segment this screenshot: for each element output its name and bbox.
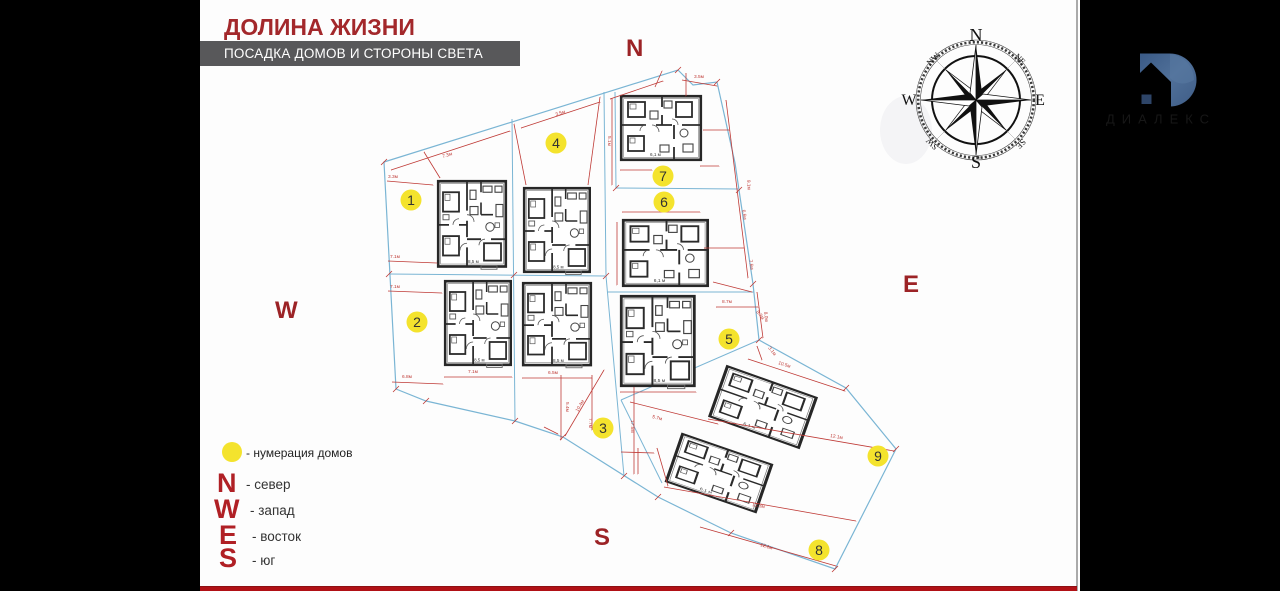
svg-text:7: 7 xyxy=(659,168,667,184)
svg-text:8.7м: 8.7м xyxy=(722,299,732,305)
svg-text:N: N xyxy=(970,25,983,45)
svg-text:8: 8 xyxy=(815,542,823,558)
svg-text:3: 3 xyxy=(599,420,607,436)
svg-text:6.6м: 6.6м xyxy=(740,209,748,220)
svg-text:SE: SE xyxy=(1014,137,1028,151)
svg-text:3.1м: 3.1м xyxy=(766,346,777,358)
svg-text:S: S xyxy=(971,152,981,172)
svg-text:1: 1 xyxy=(407,192,415,208)
svg-text:7.6м: 7.6м xyxy=(747,259,755,270)
svg-text:2: 2 xyxy=(413,314,421,330)
svg-text:9.1м: 9.1м xyxy=(745,180,752,190)
svg-text:6.8м: 6.8м xyxy=(402,374,412,380)
svg-text:7.1м: 7.1м xyxy=(468,369,478,375)
svg-text:7.1м: 7.1м xyxy=(390,284,400,290)
svg-text:7.1м: 7.1м xyxy=(390,254,400,260)
svg-text:5: 5 xyxy=(725,331,733,347)
svg-text:5.4м: 5.4м xyxy=(564,402,570,412)
svg-text:ДИАЛЕКС: ДИАЛЕКС xyxy=(1106,112,1216,127)
svg-text:8.0м: 8.0м xyxy=(762,312,769,323)
svg-text:6.5м: 6.5м xyxy=(548,370,558,376)
svg-text:7.7м: 7.7м xyxy=(587,418,593,428)
svg-text:9: 9 xyxy=(874,448,882,464)
svg-text:3.3м: 3.3м xyxy=(388,174,398,180)
svg-text:10.4м: 10.4м xyxy=(575,399,587,413)
svg-text:E: E xyxy=(1035,92,1045,109)
svg-text:5.7м: 5.7м xyxy=(652,414,663,422)
svg-text:5.1м: 5.1м xyxy=(606,136,612,146)
svg-text:4: 4 xyxy=(552,135,560,151)
svg-text:6: 6 xyxy=(660,194,668,210)
svg-text:12.1м: 12.1м xyxy=(759,542,773,551)
svg-text:3.5м: 3.5м xyxy=(555,109,566,118)
svg-text:NE: NE xyxy=(1013,51,1028,66)
svg-text:17.5м: 17.5м xyxy=(629,420,635,433)
svg-text:W: W xyxy=(901,92,917,109)
svg-text:3.5м: 3.5м xyxy=(694,74,704,80)
svg-text:10.5м: 10.5м xyxy=(777,360,791,370)
